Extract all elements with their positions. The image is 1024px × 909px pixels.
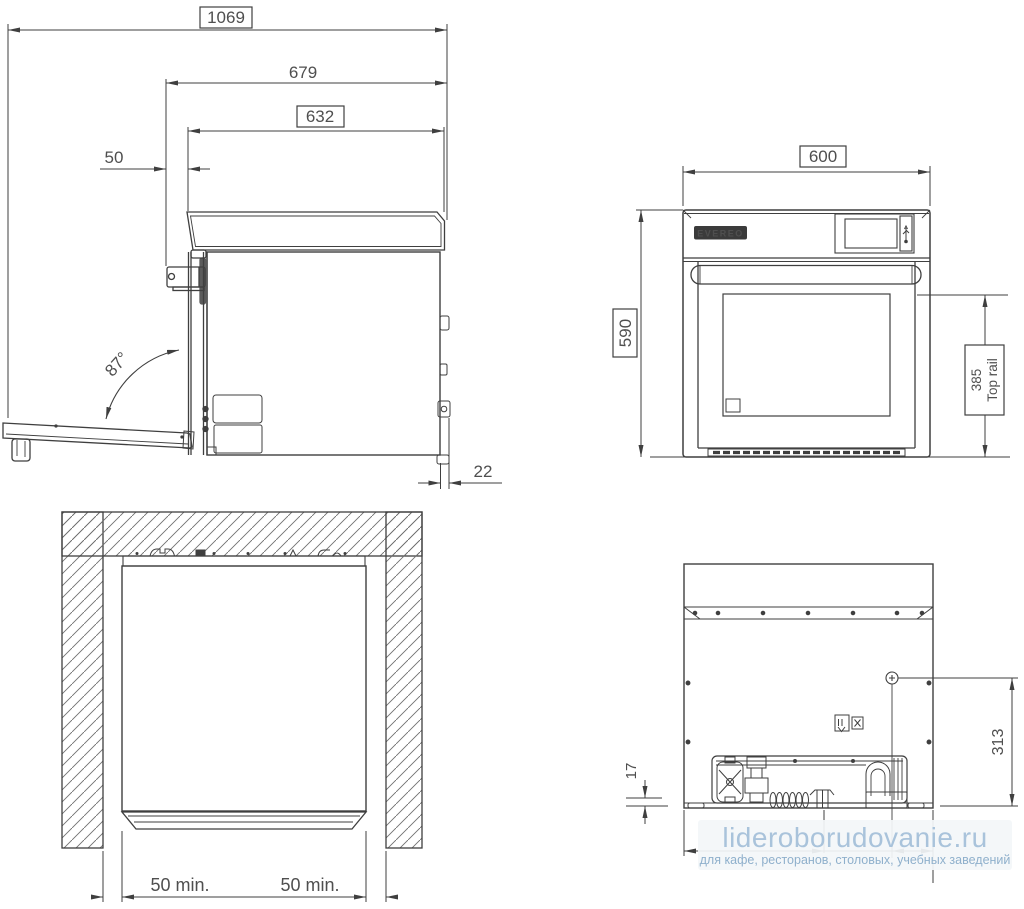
front-view-oven: EVEREO	[683, 210, 930, 457]
rear-dim-17: 17	[623, 763, 668, 824]
watermark-subtitle: для кафе, ресторанов, столовых, учебных …	[700, 854, 1011, 867]
technical-drawing-page: 1069 679 632 50 22	[0, 0, 1024, 909]
niche-walls	[62, 512, 422, 848]
door-hinge-detail	[200, 258, 206, 304]
side-dim-22: 22	[418, 418, 502, 489]
side-view: 1069 679 632 50 22	[3, 7, 502, 489]
side-view-oven-body	[167, 212, 450, 464]
dim-22-label: 22	[474, 462, 493, 481]
top-view-clearance-dims: 50 min. 50 min.	[92, 831, 398, 902]
dim-600-label: 600	[809, 147, 837, 166]
dim-590-label: 590	[616, 319, 635, 347]
rear-top-band	[684, 607, 933, 619]
door-angle-label: 87°	[101, 348, 132, 380]
side-view-open-door	[3, 423, 194, 461]
front-dim-600: 600	[683, 146, 930, 206]
brand-logo: EVEREO	[697, 229, 744, 239]
front-dim-590: 590	[613, 210, 683, 457]
watermark-title: lideroborudovanie.ru	[722, 823, 987, 852]
watermark: lideroborudovanie.ru для кафе, ресторано…	[698, 820, 1012, 870]
dim-679-label: 679	[289, 63, 317, 82]
rating-label	[835, 715, 863, 732]
rear-service-assembly	[684, 756, 933, 808]
dim-1069-label: 1069	[207, 8, 245, 27]
door-angle-arc: 87°	[101, 348, 179, 419]
oven-door-front	[691, 262, 921, 456]
dim-50min-right-label: 50 min.	[280, 875, 339, 895]
dim-17-label: 17	[623, 763, 640, 780]
top-rail-label: Top rail	[985, 358, 1000, 402]
door-window	[723, 294, 890, 416]
rear-dim-313: 313	[898, 678, 1018, 806]
usb-icon	[903, 226, 909, 243]
dim-385-label: 385	[969, 369, 984, 392]
top-view-oven	[122, 549, 366, 829]
door-handle-front	[691, 266, 921, 285]
door-handle-side	[12, 439, 30, 461]
display-screen	[845, 219, 897, 248]
dim-632-label: 632	[306, 107, 334, 126]
dim-313-label: 313	[990, 729, 1007, 756]
dim-50min-left-label: 50 min.	[150, 875, 209, 895]
side-dim-50: 50	[100, 148, 210, 169]
side-dim-679: 679	[166, 63, 447, 266]
control-panel	[835, 214, 914, 253]
front-view: 600 590 385 Top rail	[613, 146, 1010, 457]
side-dim-632: 632	[188, 106, 444, 212]
top-view: 50 min. 50 min.	[62, 512, 422, 902]
dim-50-label: 50	[105, 148, 124, 167]
oven-technical-drawing: 1069 679 632 50 22	[0, 0, 1024, 909]
